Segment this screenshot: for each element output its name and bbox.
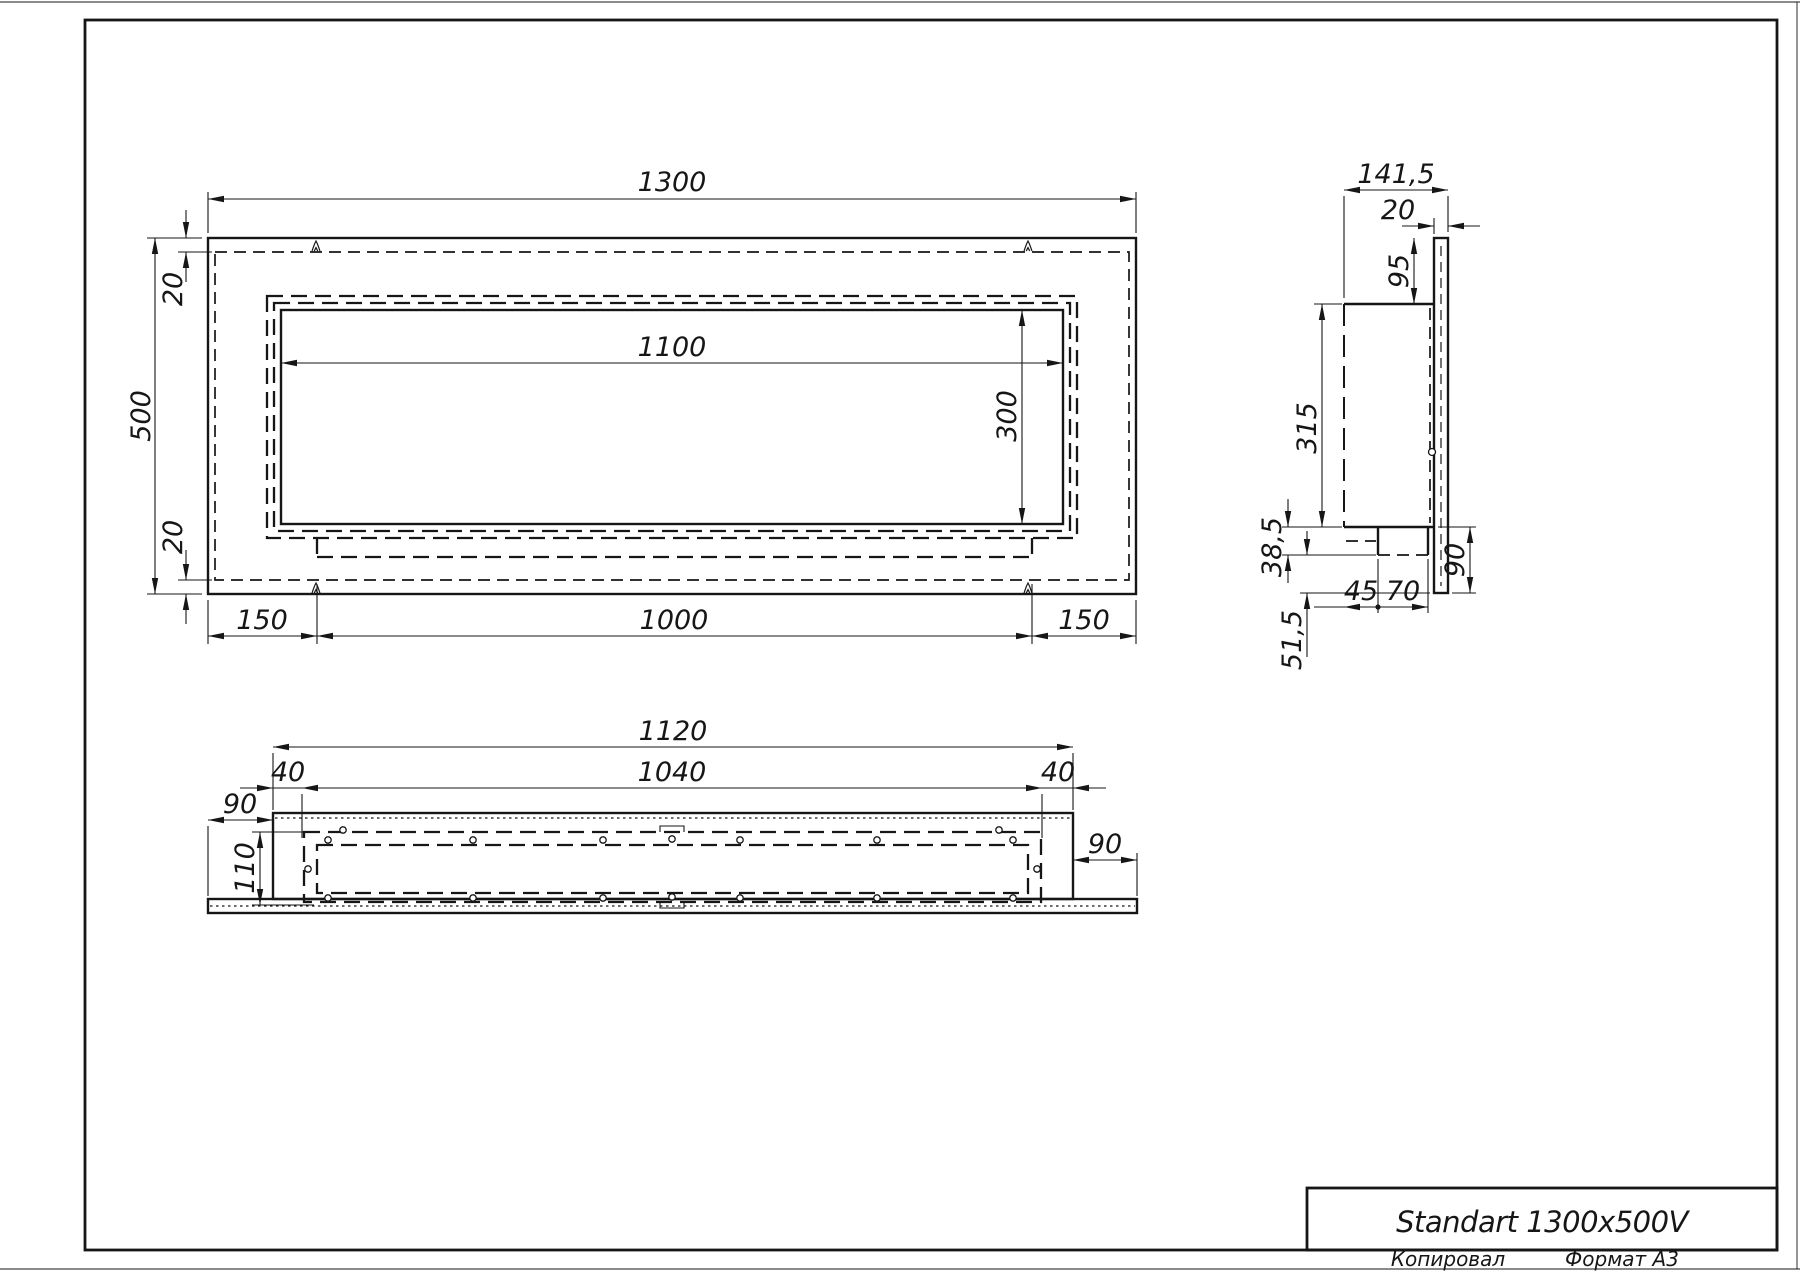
arrowhead bbox=[257, 817, 273, 823]
arrowhead bbox=[1319, 304, 1325, 320]
mounting-hole bbox=[340, 827, 346, 833]
arrowhead bbox=[183, 594, 189, 610]
arrowhead bbox=[1019, 508, 1025, 524]
mounting-mark bbox=[312, 583, 320, 593]
arrowhead bbox=[273, 744, 289, 750]
arrowhead bbox=[1120, 633, 1136, 639]
arrowhead bbox=[183, 222, 189, 238]
arrowhead bbox=[1057, 744, 1073, 750]
arrowhead bbox=[1467, 577, 1473, 593]
format-label: Формат A3 bbox=[1565, 1247, 1679, 1271]
arrowhead bbox=[1448, 223, 1464, 229]
arrowhead bbox=[1073, 857, 1089, 863]
arrowhead bbox=[1073, 785, 1089, 791]
dim-front-height: 500 bbox=[126, 390, 157, 442]
dim-tray-height: 38,5 bbox=[1257, 517, 1288, 577]
arrowhead bbox=[1411, 238, 1417, 254]
arrowhead bbox=[1121, 857, 1137, 863]
arrowhead bbox=[208, 633, 224, 639]
dim-margin-left: 150 bbox=[236, 605, 288, 636]
mounting-hole bbox=[325, 895, 331, 901]
mounting-mark bbox=[1024, 583, 1032, 593]
mounting-hole bbox=[669, 836, 675, 842]
dim-body-height: 315 bbox=[1292, 402, 1323, 454]
copied-label: Копировал bbox=[1391, 1247, 1505, 1271]
mounting-hole bbox=[600, 837, 606, 843]
arrowhead bbox=[1304, 593, 1310, 609]
mounting-hole bbox=[669, 894, 675, 900]
title-text: Standart 1300x500V bbox=[1396, 1205, 1690, 1239]
fixing-hole bbox=[1429, 449, 1436, 456]
arrowhead bbox=[183, 252, 189, 268]
arrowhead bbox=[183, 564, 189, 580]
dim-overhang-left: 90 bbox=[223, 789, 257, 820]
arrowhead bbox=[1418, 223, 1434, 229]
dim-burner-width: 1000 bbox=[640, 605, 709, 636]
arrowhead bbox=[1026, 785, 1042, 791]
arrowhead bbox=[1319, 511, 1325, 527]
dim-gap-right: 40 bbox=[1041, 757, 1075, 788]
mounting-hole bbox=[1010, 895, 1016, 901]
insert-hidden-inner bbox=[317, 845, 1028, 893]
drawing-frame bbox=[85, 20, 1777, 1250]
arrowhead bbox=[317, 633, 333, 639]
front-view: 1300500202011003001501000150 bbox=[126, 167, 1136, 644]
mounting-hole bbox=[996, 827, 1002, 833]
dim-facade-thickness: 20 bbox=[1381, 195, 1415, 226]
dim-gap-left: 40 bbox=[271, 757, 305, 788]
title-block: Standart 1300x500VКопировалФормат A3 bbox=[1307, 1188, 1777, 1271]
drawing-sheet: 1300500202011003001501000150141,52095315… bbox=[0, 0, 1800, 1273]
dim-front-inset-bottom: 20 bbox=[158, 520, 189, 554]
mounting-hole bbox=[1010, 837, 1016, 843]
mounting-hole bbox=[737, 895, 743, 901]
technical-drawing: 1300500202011003001501000150141,52095315… bbox=[0, 0, 1800, 1273]
mounting-hole bbox=[470, 837, 476, 843]
arrowhead bbox=[152, 238, 158, 254]
mounting-hole bbox=[325, 837, 331, 843]
dim-side-depth: 141,5 bbox=[1357, 159, 1434, 190]
dim-overhang-right: 90 bbox=[1088, 829, 1122, 860]
dim-bottom-margin: 90 bbox=[1440, 543, 1471, 577]
arrowhead bbox=[152, 578, 158, 594]
dim-insert-depth: 110 bbox=[230, 842, 261, 894]
dim-front-inset-top: 20 bbox=[158, 272, 189, 306]
arrowhead bbox=[1120, 196, 1136, 202]
arrowhead bbox=[1019, 310, 1025, 326]
dim-tray-back: 70 bbox=[1386, 576, 1420, 607]
arrowhead bbox=[301, 633, 317, 639]
arrowhead bbox=[1411, 288, 1417, 304]
dim-bottom-body-width: 1120 bbox=[639, 716, 708, 747]
dim-opening-height: 300 bbox=[992, 390, 1023, 442]
mounting-mark bbox=[312, 241, 320, 251]
arrowhead bbox=[281, 360, 297, 366]
dim-opening-width: 1100 bbox=[638, 332, 707, 363]
arrowhead bbox=[1016, 633, 1032, 639]
dim-bottom-offset: 51,5 bbox=[1277, 610, 1308, 670]
mounting-hole bbox=[470, 895, 476, 901]
dim-margin-right: 150 bbox=[1058, 605, 1110, 636]
bottom-view: 1120104040409011090 bbox=[208, 716, 1137, 913]
side-view: 141,5209531538,551,5904570 bbox=[1257, 159, 1480, 670]
dim-top-offset: 95 bbox=[1384, 254, 1415, 288]
mounting-hole bbox=[874, 895, 880, 901]
mounting-mark bbox=[1024, 241, 1032, 251]
arrowhead bbox=[1467, 527, 1473, 543]
dim-front-width: 1300 bbox=[638, 167, 707, 198]
arrowhead bbox=[1304, 539, 1310, 555]
dim-tray-front: 45 bbox=[1344, 576, 1378, 607]
mounting-hole bbox=[1034, 866, 1040, 872]
dim-insert-width: 1040 bbox=[638, 757, 707, 788]
arrowhead bbox=[1047, 360, 1063, 366]
mounting-hole bbox=[305, 866, 311, 872]
mounting-hole bbox=[600, 895, 606, 901]
arrowhead bbox=[1032, 633, 1048, 639]
arrowhead bbox=[208, 196, 224, 202]
mounting-hole bbox=[874, 837, 880, 843]
arrowhead bbox=[208, 817, 224, 823]
mounting-hole bbox=[737, 837, 743, 843]
